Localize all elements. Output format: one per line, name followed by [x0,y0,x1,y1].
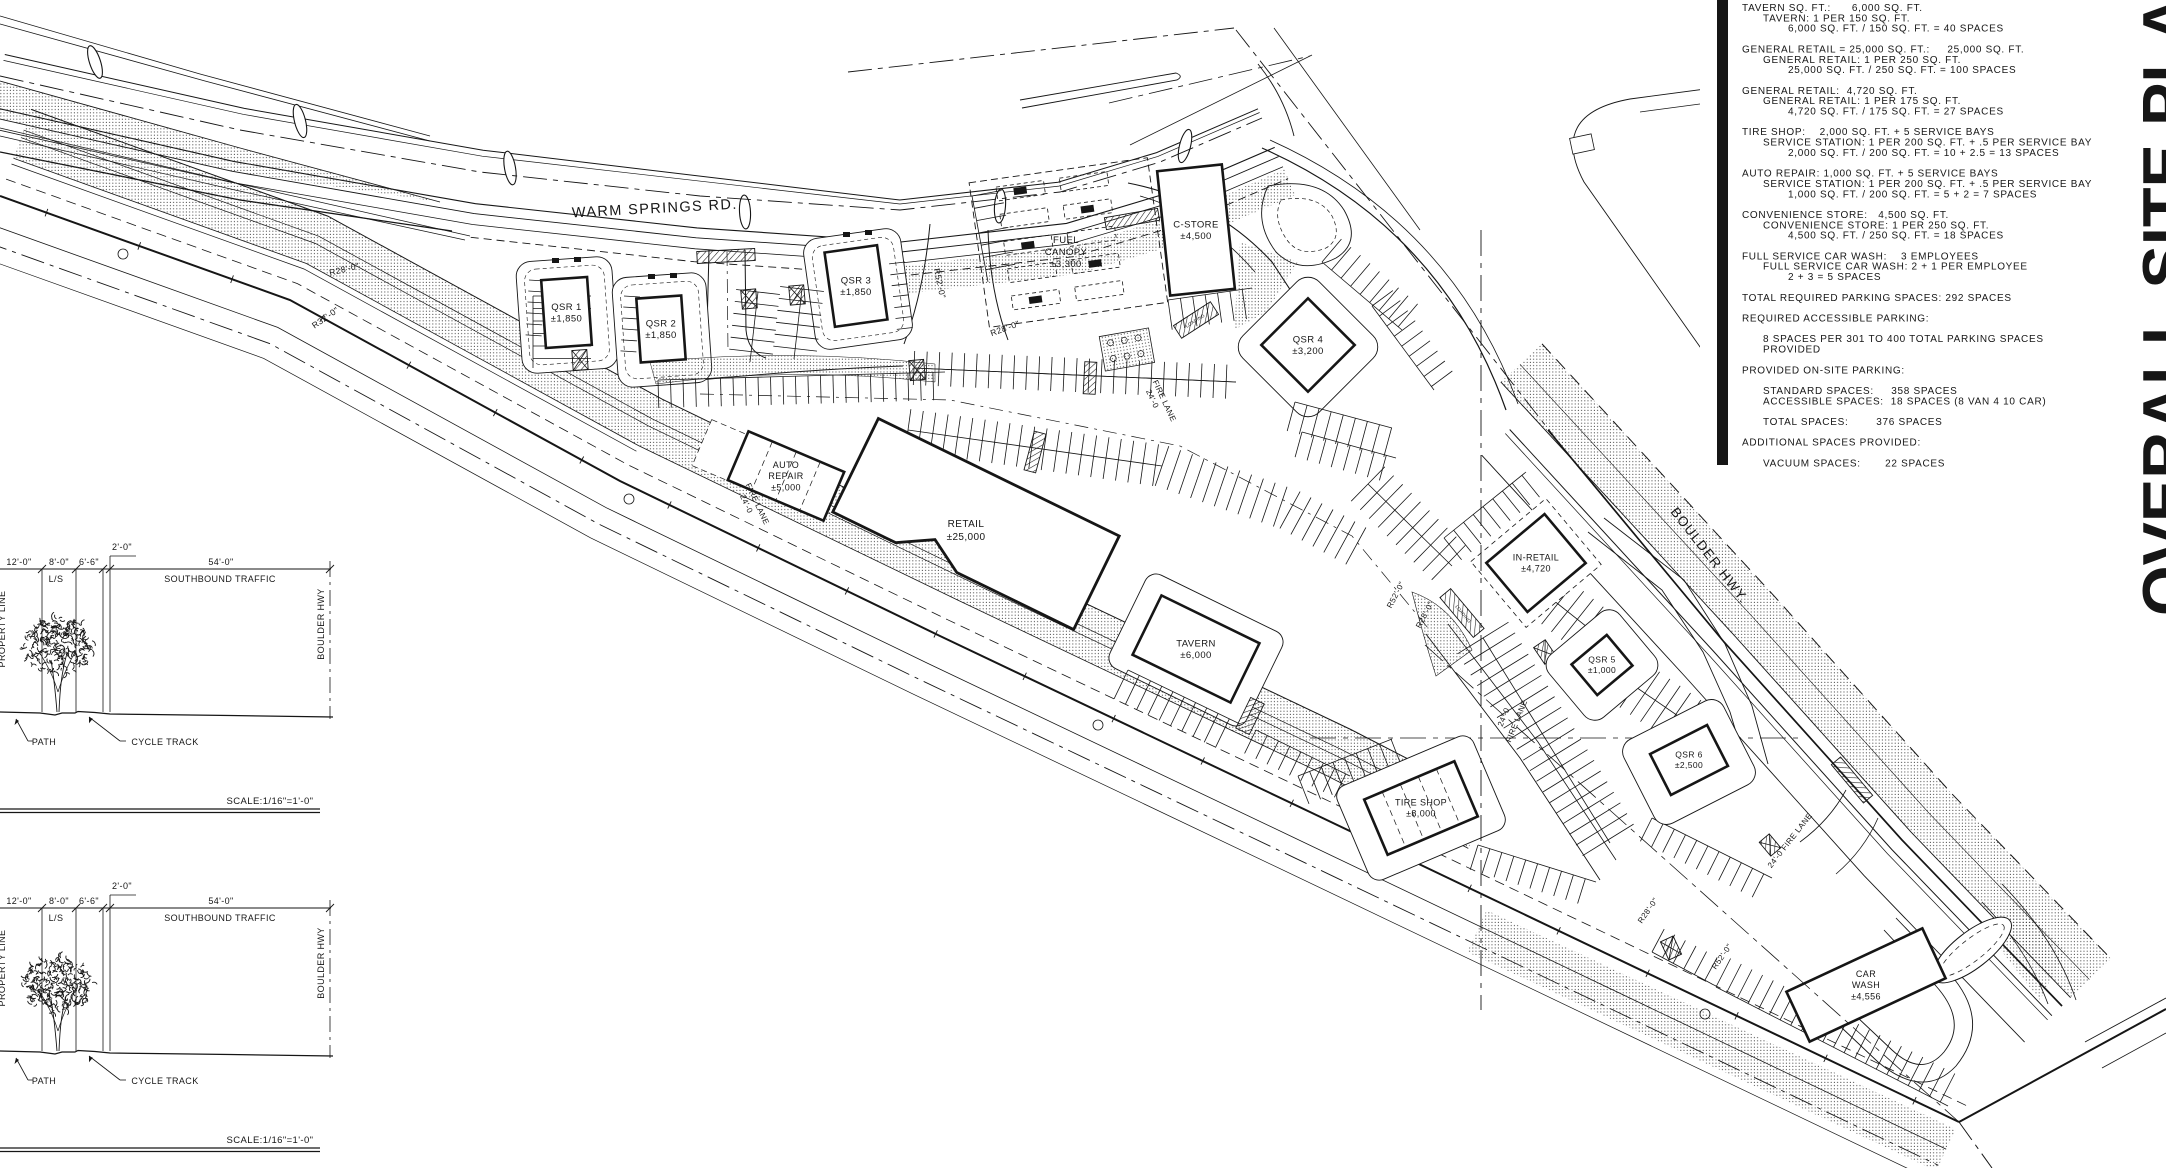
svg-text:TOTAL SPACES: 376 SPACE: TOTAL SPACES: 376 SPACES [1763,417,1943,428]
svg-text:WASH: WASH [1852,980,1880,990]
svg-text:SCALE:1/16"=1'-0": SCALE:1/16"=1'-0" [227,1135,314,1146]
svg-text:FUEL: FUEL [1053,235,1079,246]
svg-text:QSR 2: QSR 2 [646,318,677,329]
svg-text:±2,500: ±2,500 [1675,760,1703,770]
svg-text:QSR 1: QSR 1 [551,302,582,313]
svg-text:8 SPACES PER 301 TO 400 TOTAL: 8 SPACES PER 301 TO 400 TOTAL PARKING SP… [1763,334,2044,345]
svg-text:54'-0": 54'-0" [208,557,233,567]
svg-text:TOTAL REQUIRED PARKING SPACES:: TOTAL REQUIRED PARKING SPACES: 292 SPACE… [1742,293,2012,304]
svg-text:TAVERN SQ. FT.: 6,000 SQ.: TAVERN SQ. FT.: 6,000 SQ. FT. [1742,3,1923,14]
svg-text:BOULDER HWY: BOULDER HWY [316,927,326,998]
svg-text:BOULDER HWY: BOULDER HWY [316,588,326,659]
svg-text:8'-0": 8'-0" [49,557,69,567]
svg-text:±8,000: ±8,000 [1406,809,1436,819]
svg-text:±6,000: ±6,000 [1180,650,1211,661]
svg-text:RETAIL: RETAIL [948,519,985,530]
svg-text:6,000 SQ. FT. / 150 SQ. FT. =: 6,000 SQ. FT. / 150 SQ. FT. = 40 SPACES [1788,24,2004,35]
svg-text:CYCLE TRACK: CYCLE TRACK [131,737,198,747]
svg-text:2'-0": 2'-0" [112,542,132,552]
svg-text:2'-0": 2'-0" [112,881,132,891]
svg-text:±3,300: ±3,300 [1050,259,1081,270]
svg-text:1,000 SQ. FT. / 200 SQ. FT. =: 1,000 SQ. FT. / 200 SQ. FT. = 5 + 2 = 7 … [1788,189,2037,200]
svg-text:±1,850: ±1,850 [840,287,871,298]
svg-text:±3,200: ±3,200 [1292,346,1323,357]
svg-text:QSR 6: QSR 6 [1675,750,1703,760]
svg-text:OVERALL SITE PLAN: OVERALL SITE PLAN [2129,0,2166,616]
svg-text:±4,720: ±4,720 [1521,564,1551,574]
svg-text:12'-0": 12'-0" [6,896,31,906]
svg-text:REQUIRED ACCESSIBLE PARKING:: REQUIRED ACCESSIBLE PARKING: [1742,314,1929,325]
svg-text:±25,000: ±25,000 [947,532,986,543]
svg-text:2 + 3 = 5 SPACES: 2 + 3 = 5 SPACES [1788,272,1881,283]
svg-text:FULL SERVICE CAR WASH: 2 + 1 P: FULL SERVICE CAR WASH: 2 + 1 PER EMPLOYE… [1763,262,2028,273]
svg-text:QSR 3: QSR 3 [841,275,872,286]
svg-text:TIRE SHOP: TIRE SHOP [1395,798,1447,808]
svg-text:SOUTHBOUND TRAFFIC: SOUTHBOUND TRAFFIC [164,574,276,584]
svg-text:L/S: L/S [49,574,64,584]
svg-text:4,720 SQ. FT. / 175 SQ. FT. =: 4,720 SQ. FT. / 175 SQ. FT. = 27 SPACES [1788,107,2004,118]
svg-text:CANOPY: CANOPY [1045,247,1088,258]
svg-text:PROVIDED: PROVIDED [1763,345,1821,356]
svg-text:SOUTHBOUND TRAFFIC: SOUTHBOUND TRAFFIC [164,913,276,923]
svg-text:12'-0": 12'-0" [6,557,31,567]
svg-text:±4,556: ±4,556 [1851,991,1881,1001]
svg-text:25,000 SQ. FT. / 250 SQ. FT. =: 25,000 SQ. FT. / 250 SQ. FT. = 100 SPACE… [1788,65,2016,76]
svg-text:8'-0": 8'-0" [49,896,69,906]
svg-text:C-STORE: C-STORE [1173,219,1218,230]
svg-text:GENERAL RETAIL: 1 PER 175 SQ.: GENERAL RETAIL: 1 PER 175 SQ. FT. [1763,96,1961,107]
svg-text:SCALE:1/16"=1'-0": SCALE:1/16"=1'-0" [227,796,314,807]
svg-text:4,500 SQ. FT. / 250 SQ. FT. =: 4,500 SQ. FT. / 250 SQ. FT. = 18 SPACES [1788,231,2004,242]
svg-text:±4,500: ±4,500 [1180,231,1211,242]
svg-text:REPAIR: REPAIR [768,471,803,481]
svg-text:TAVERN: TAVERN [1176,638,1216,649]
svg-text:PATH: PATH [32,737,56,747]
svg-text:PROVIDED ON-SITE PARKING:: PROVIDED ON-SITE PARKING: [1742,365,1905,376]
svg-text:SERVICE STATION: 1 PER 200 SQ.: SERVICE STATION: 1 PER 200 SQ. FT. + .5 … [1763,179,2092,190]
svg-text:CYCLE TRACK: CYCLE TRACK [131,1076,198,1086]
svg-text:ACCESSIBLE SPACES: 18 SPACES: ACCESSIBLE SPACES: 18 SPACES (8 VAN 4 10… [1763,396,2046,407]
svg-text:VACUUM SPACES: 22 SPACES: VACUUM SPACES: 22 SPACES [1763,458,1945,469]
svg-text:CONVENIENCE STORE: 1 PER 250 S: CONVENIENCE STORE: 1 PER 250 SQ. FT. [1763,220,1989,231]
svg-text:QSR 4: QSR 4 [1293,334,1324,345]
svg-text:6'-6": 6'-6" [79,557,99,567]
svg-text:L/S: L/S [49,913,64,923]
svg-text:PATH: PATH [32,1076,56,1086]
svg-text:ADDITIONAL SPACES PROVIDED:: ADDITIONAL SPACES PROVIDED: [1742,438,1921,449]
svg-text:SERVICE STATION: 1 PER 200 SQ.: SERVICE STATION: 1 PER 200 SQ. FT. + .5 … [1763,138,2092,149]
svg-text:PROPERTY LINE: PROPERTY LINE [0,930,7,1007]
svg-text:±1,850: ±1,850 [645,330,676,341]
svg-text:±5,000: ±5,000 [771,482,801,492]
svg-text:2,000 SQ. FT. / 200 SQ. FT. =: 2,000 SQ. FT. / 200 SQ. FT. = 10 + 2.5 =… [1788,148,2059,159]
svg-text:CAR: CAR [1856,969,1876,979]
svg-text:6'-6": 6'-6" [79,896,99,906]
svg-text:±1,000: ±1,000 [1588,665,1616,675]
svg-text:AUTO: AUTO [773,460,799,470]
svg-text:GENERAL RETAIL = 25,000 SQ. FT: GENERAL RETAIL = 25,000 SQ. FT.: 25,000 … [1742,44,2024,55]
svg-text:54'-0": 54'-0" [208,896,233,906]
svg-text:QSR 5: QSR 5 [1588,655,1616,665]
svg-text:IN-RETAIL: IN-RETAIL [1513,553,1559,563]
svg-text:PROPERTY LINE: PROPERTY LINE [0,591,7,668]
svg-text:±1,850: ±1,850 [551,314,582,325]
